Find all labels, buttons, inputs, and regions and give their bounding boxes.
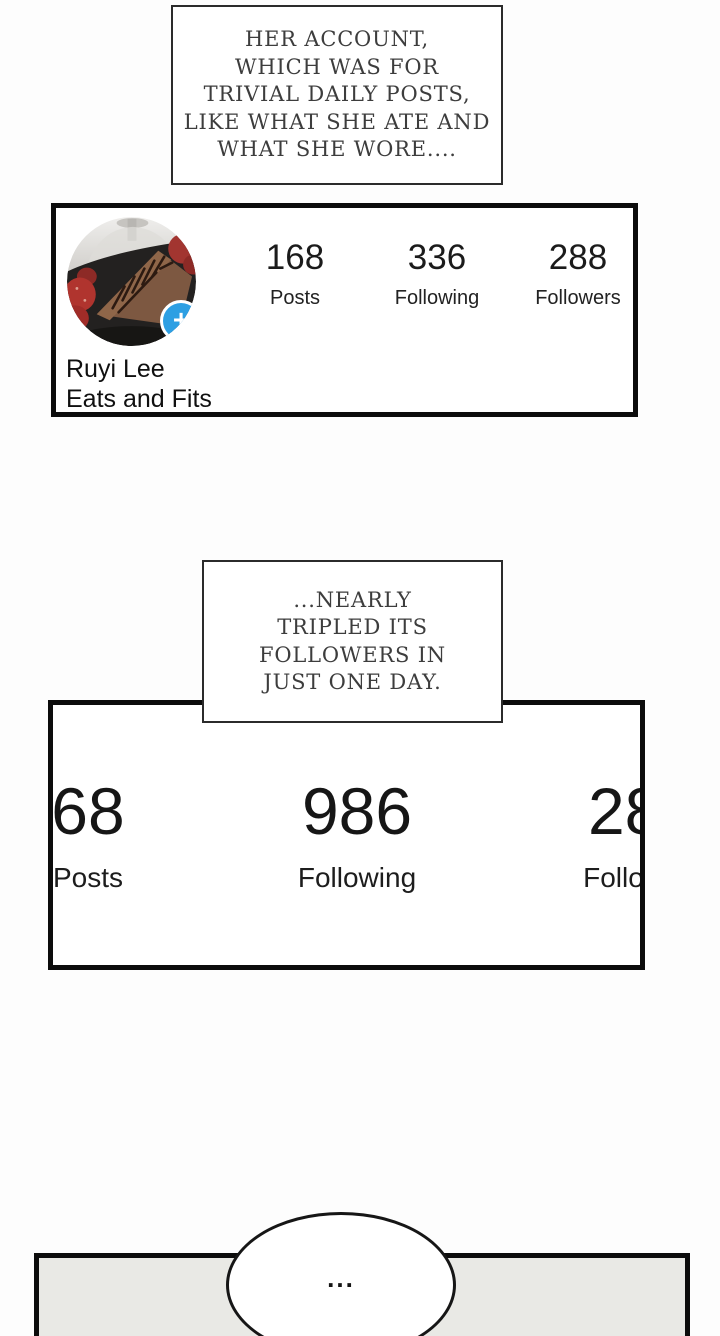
zoom-stat-posts: 68 Posts xyxy=(51,771,124,895)
zoom-stat-following: 986 Following xyxy=(298,771,416,895)
webtoon-page: HER ACCOUNT, WHICH WAS FOR TRIVIAL DAILY… xyxy=(0,0,720,1336)
narration-caption-top: HER ACCOUNT, WHICH WAS FOR TRIVIAL DAILY… xyxy=(171,5,503,185)
stat-posts[interactable]: 168 Posts xyxy=(266,236,324,310)
profile-panel: + Ruyi Lee Eats and Fits 168 Posts 336 F… xyxy=(51,203,638,417)
following-count: 336 xyxy=(395,236,479,280)
following-label: Following xyxy=(395,286,479,310)
speech-bubble-text: ... xyxy=(327,1263,355,1294)
profile-names: Ruyi Lee Eats and Fits xyxy=(66,354,212,414)
caption-line: HER ACCOUNT, xyxy=(245,26,429,54)
zoom-posts-label: Posts xyxy=(51,861,124,895)
profile-bio: Eats and Fits xyxy=(66,384,212,414)
stat-following[interactable]: 336 Following xyxy=(395,236,479,310)
caption-line: ...NEARLY xyxy=(293,587,411,615)
caption-line: TRIVIAL DAILY POSTS, xyxy=(204,81,471,109)
posts-count: 168 xyxy=(266,236,324,280)
zoom-posts-count: 68 xyxy=(51,771,124,851)
zoom-followers-count: 288 xyxy=(583,771,645,851)
avatar[interactable]: + xyxy=(67,217,196,346)
speech-bubble: ... xyxy=(226,1212,456,1336)
followers-count: 288 xyxy=(535,236,621,280)
zoom-following-count: 986 xyxy=(298,771,416,851)
zoom-following-label: Following xyxy=(298,861,416,895)
caption-line: WHICH WAS FOR xyxy=(235,54,439,82)
profile-name: Ruyi Lee xyxy=(66,354,212,384)
caption-line: LIKE WHAT SHE ATE AND xyxy=(184,109,490,137)
caption-line: FOLLOWERS IN xyxy=(259,642,446,670)
caption-line: JUST ONE DAY. xyxy=(263,669,441,697)
followers-label: Followers xyxy=(535,286,621,310)
zoom-followers-label: Followers xyxy=(583,861,645,895)
add-story-plus-button[interactable]: + xyxy=(160,300,196,342)
caption-line: TRIPLED ITS xyxy=(277,614,428,642)
zoomed-profile-panel: 68 Posts 986 Following 288 Followers xyxy=(48,700,645,970)
stat-followers[interactable]: 288 Followers xyxy=(535,236,621,310)
zoom-stat-followers: 288 Followers xyxy=(583,771,645,895)
posts-label: Posts xyxy=(266,286,324,310)
narration-caption-mid: ...NEARLY TRIPLED ITS FOLLOWERS IN JUST … xyxy=(202,560,503,723)
caption-line: WHAT SHE WORE.... xyxy=(217,136,457,164)
